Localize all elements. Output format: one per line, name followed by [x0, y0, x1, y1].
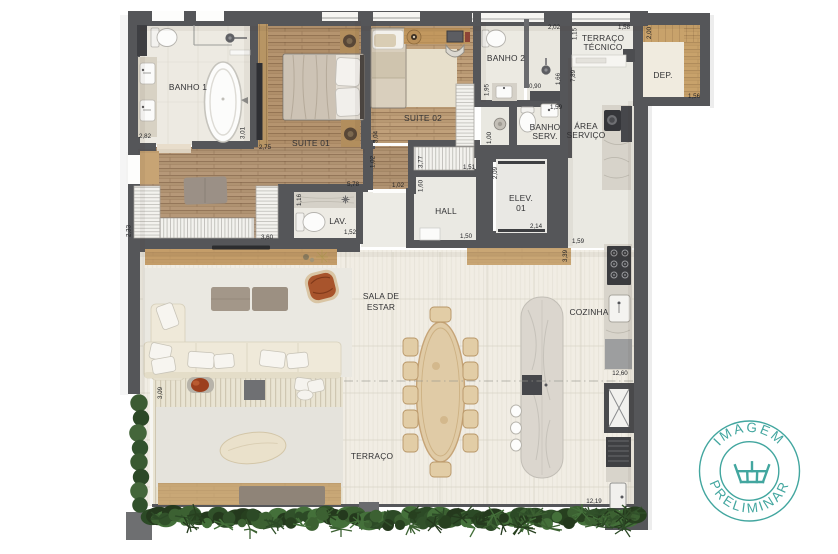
svg-text:2,82: 2,82: [139, 133, 152, 140]
svg-text:1,58: 1,58: [618, 24, 631, 31]
svg-text:12,60: 12,60: [612, 370, 628, 377]
svg-text:1,56: 1,56: [688, 93, 701, 100]
svg-text:2,09: 2,09: [492, 166, 499, 179]
svg-text:3,39: 3,39: [562, 249, 569, 262]
svg-text:0,90: 0,90: [529, 83, 542, 90]
svg-text:12,19: 12,19: [586, 498, 602, 505]
svg-text:1,16: 1,16: [296, 193, 303, 206]
svg-text:SERV.: SERV.: [532, 131, 557, 141]
svg-text:3,09: 3,09: [157, 386, 164, 399]
svg-text:5,78: 5,78: [347, 181, 360, 188]
svg-text:1,60: 1,60: [418, 179, 425, 192]
svg-text:SUITE 02: SUITE 02: [404, 113, 442, 123]
svg-text:2,14: 2,14: [530, 223, 543, 230]
svg-text:COZINHA: COZINHA: [569, 307, 608, 317]
svg-text:7,89: 7,89: [570, 69, 577, 82]
svg-text:1,02: 1,02: [392, 182, 405, 189]
svg-text:1,02: 1,02: [370, 155, 377, 168]
svg-text:BANHO 1: BANHO 1: [169, 82, 207, 92]
svg-text:01: 01: [516, 203, 526, 213]
svg-text:2,02: 2,02: [548, 24, 561, 31]
svg-text:1,66: 1,66: [555, 72, 562, 85]
svg-text:TÉCNICO: TÉCNICO: [583, 42, 622, 52]
svg-text:1,59: 1,59: [572, 238, 585, 245]
svg-text:2,33: 2,33: [126, 224, 133, 237]
svg-text:ESTAR: ESTAR: [367, 302, 395, 312]
svg-text:3,77: 3,77: [418, 155, 425, 168]
svg-text:3,60: 3,60: [261, 234, 274, 241]
svg-text:SALA DE: SALA DE: [363, 291, 400, 301]
svg-text:1,59: 1,59: [550, 104, 563, 111]
svg-text:LAV.: LAV.: [329, 216, 347, 226]
svg-text:HALL: HALL: [435, 206, 457, 216]
svg-text:SUITE 01: SUITE 01: [292, 138, 330, 148]
svg-text:1,95: 1,95: [484, 83, 491, 96]
svg-text:1,52: 1,52: [344, 229, 357, 236]
svg-text:TERRAÇO: TERRAÇO: [351, 451, 394, 461]
svg-text:1,15: 1,15: [572, 27, 579, 40]
svg-text:3,01: 3,01: [240, 126, 247, 139]
svg-text:2,00: 2,00: [646, 26, 653, 39]
svg-text:1,00: 1,00: [486, 131, 493, 144]
svg-text:SERVIÇO: SERVIÇO: [567, 130, 606, 140]
svg-text:DEP.: DEP.: [653, 70, 672, 80]
svg-text:BANHO 2: BANHO 2: [487, 53, 525, 63]
svg-text:1,51: 1,51: [463, 164, 476, 171]
svg-text:3,04: 3,04: [373, 130, 380, 143]
svg-text:ELEV.: ELEV.: [509, 193, 533, 203]
svg-text:2,75: 2,75: [259, 144, 272, 151]
svg-text:1,50: 1,50: [460, 233, 473, 240]
